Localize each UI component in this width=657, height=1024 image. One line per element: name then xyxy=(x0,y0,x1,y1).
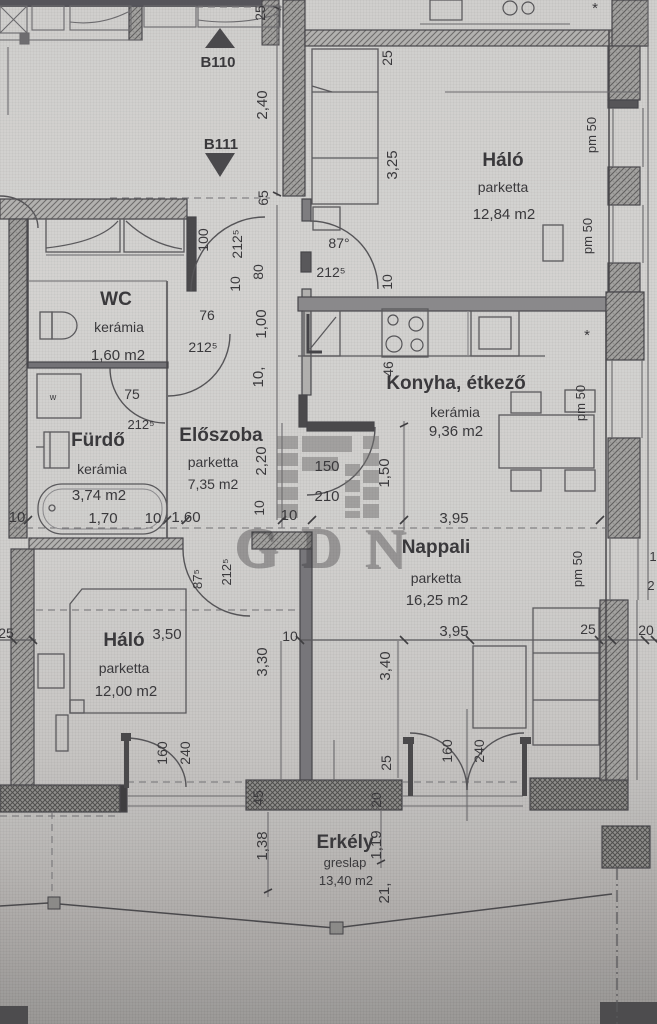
svg-text:10: 10 xyxy=(282,628,298,644)
svg-text:45: 45 xyxy=(250,790,266,806)
svg-text:3,30: 3,30 xyxy=(254,647,271,676)
svg-text:2,40: 2,40 xyxy=(254,90,271,119)
svg-text:87°: 87° xyxy=(328,235,349,251)
svg-text:pm 50: pm 50 xyxy=(584,117,599,153)
svg-text:Nappali: Nappali xyxy=(402,537,471,558)
svg-text:Háló: Háló xyxy=(482,150,523,171)
svg-text:parketta: parketta xyxy=(188,454,239,470)
svg-text:87⁵: 87⁵ xyxy=(190,569,205,589)
svg-text:Fürdő: Fürdő xyxy=(71,430,125,451)
svg-text:w: w xyxy=(49,392,57,402)
svg-text:Erkély: Erkély xyxy=(316,832,373,853)
svg-text:N: N xyxy=(365,518,405,580)
svg-text:21,: 21, xyxy=(376,883,393,904)
svg-text:46: 46 xyxy=(380,361,396,377)
svg-text:kerámia: kerámia xyxy=(77,461,127,477)
svg-text:pm 50: pm 50 xyxy=(573,385,588,421)
svg-text:1,00: 1,00 xyxy=(253,309,270,338)
svg-text:3,40: 3,40 xyxy=(377,651,394,680)
svg-text:25: 25 xyxy=(252,5,268,21)
svg-text:1: 1 xyxy=(649,549,656,564)
svg-text:10: 10 xyxy=(227,276,243,292)
svg-text:25: 25 xyxy=(378,755,394,771)
svg-text:parketta: parketta xyxy=(99,660,150,676)
svg-text:1,19: 1,19 xyxy=(368,830,385,859)
svg-text:150: 150 xyxy=(314,458,339,475)
svg-text:2: 2 xyxy=(647,578,654,593)
svg-text:WC: WC xyxy=(100,289,132,310)
svg-text:212⁵: 212⁵ xyxy=(188,339,217,355)
svg-text:1,60: 1,60 xyxy=(171,509,200,526)
svg-text:16,25 m2: 16,25 m2 xyxy=(406,592,469,609)
svg-text:pm 50: pm 50 xyxy=(580,218,595,254)
svg-text:25: 25 xyxy=(580,621,596,637)
svg-text:9,36 m2: 9,36 m2 xyxy=(429,423,483,440)
svg-text:3,95: 3,95 xyxy=(439,510,468,527)
svg-text:240: 240 xyxy=(471,739,487,763)
svg-text:25: 25 xyxy=(379,50,395,66)
svg-text:10: 10 xyxy=(9,509,26,526)
svg-text:20: 20 xyxy=(368,792,384,808)
svg-text:160: 160 xyxy=(154,741,170,765)
svg-text:75: 75 xyxy=(124,386,140,402)
svg-text:kerámia: kerámia xyxy=(94,319,144,335)
svg-text:3,25: 3,25 xyxy=(384,150,401,179)
svg-text:1,50: 1,50 xyxy=(376,458,393,487)
svg-text:*: * xyxy=(584,327,590,344)
svg-text:212⁵: 212⁵ xyxy=(127,417,154,432)
svg-text:212⁵: 212⁵ xyxy=(316,264,345,280)
svg-text:76: 76 xyxy=(199,307,215,323)
svg-text:12,00 m2: 12,00 m2 xyxy=(95,683,158,700)
svg-text:65: 65 xyxy=(255,190,271,206)
svg-text:100: 100 xyxy=(195,228,211,252)
svg-text:20: 20 xyxy=(638,622,654,638)
svg-text:10,: 10, xyxy=(250,367,267,388)
svg-text:212⁵: 212⁵ xyxy=(219,558,234,585)
svg-text:25: 25 xyxy=(0,625,14,641)
svg-text:160: 160 xyxy=(439,739,455,763)
svg-text:*: * xyxy=(592,0,598,17)
svg-text:3,74 m2: 3,74 m2 xyxy=(72,487,126,504)
svg-text:parketta: parketta xyxy=(478,179,529,195)
svg-text:1,60 m2: 1,60 m2 xyxy=(91,347,145,364)
svg-text:greslap: greslap xyxy=(324,855,367,870)
svg-text:10: 10 xyxy=(379,274,395,290)
svg-text:G: G xyxy=(234,517,278,579)
svg-text:240: 240 xyxy=(177,741,193,765)
svg-text:13,40 m2: 13,40 m2 xyxy=(319,873,373,888)
svg-text:1,70: 1,70 xyxy=(88,510,117,527)
svg-text:Háló: Háló xyxy=(103,630,144,651)
svg-text:parketta: parketta xyxy=(411,570,462,586)
svg-text:212⁵: 212⁵ xyxy=(229,229,245,258)
svg-text:12,84 m2: 12,84 m2 xyxy=(473,206,536,223)
svg-text:Konyha, étkező: Konyha, étkező xyxy=(386,373,525,394)
svg-text:10: 10 xyxy=(145,510,162,527)
svg-text:7,35 m2: 7,35 m2 xyxy=(188,476,239,492)
svg-text:pm 50: pm 50 xyxy=(570,551,585,587)
svg-text:B111: B111 xyxy=(204,136,238,153)
svg-text:B110: B110 xyxy=(200,54,235,71)
svg-text:kerámia: kerámia xyxy=(430,404,480,420)
svg-text:D: D xyxy=(301,517,341,579)
svg-text:3,95: 3,95 xyxy=(439,623,468,640)
svg-text:210: 210 xyxy=(314,488,339,505)
svg-text:80: 80 xyxy=(250,264,266,280)
svg-text:1,38: 1,38 xyxy=(254,831,271,860)
svg-text:3,50: 3,50 xyxy=(152,626,181,643)
svg-text:10: 10 xyxy=(281,507,298,524)
svg-text:2,20: 2,20 xyxy=(253,446,270,475)
svg-text:Előszoba: Előszoba xyxy=(179,425,263,446)
svg-text:10: 10 xyxy=(251,500,267,516)
